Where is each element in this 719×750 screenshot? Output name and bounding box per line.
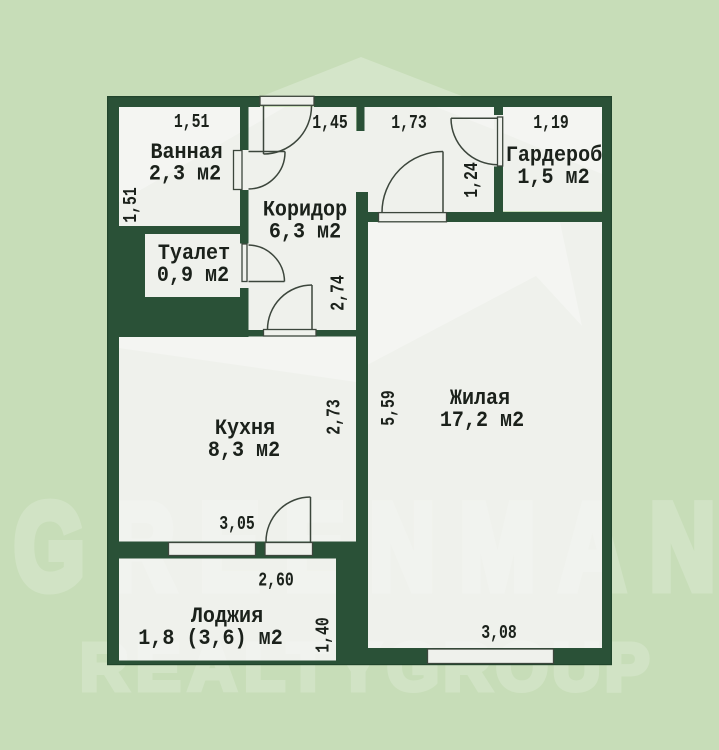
svg-text:1,24: 1,24 <box>463 162 484 198</box>
svg-text:GROUP: GROUP <box>387 630 654 705</box>
svg-text:2,3 м2: 2,3 м2 <box>149 162 221 187</box>
svg-text:1,45: 1,45 <box>312 113 348 134</box>
svg-text:5,59: 5,59 <box>379 390 400 426</box>
svg-text:8,3 м2: 8,3 м2 <box>208 438 280 463</box>
svg-text:1,73: 1,73 <box>391 113 427 134</box>
svg-text:1,51: 1,51 <box>121 187 142 223</box>
svg-text:3,08: 3,08 <box>481 623 517 644</box>
svg-text:2,60: 2,60 <box>258 571 294 592</box>
svg-text:1,40: 1,40 <box>314 617 335 653</box>
svg-text:1,51: 1,51 <box>174 112 210 133</box>
svg-text:2,74: 2,74 <box>329 275 350 311</box>
svg-text:1,5 м2: 1,5 м2 <box>517 165 589 190</box>
svg-text:1,19: 1,19 <box>533 113 569 134</box>
svg-text:1,8 (3,6) м2: 1,8 (3,6) м2 <box>138 626 282 651</box>
svg-text:2,73: 2,73 <box>325 399 346 435</box>
svg-text:0,9 м2: 0,9 м2 <box>157 263 229 288</box>
svg-text:17,2 м2: 17,2 м2 <box>440 408 524 433</box>
svg-text:3,05: 3,05 <box>219 514 255 535</box>
svg-text:6,3 м2: 6,3 м2 <box>269 219 341 244</box>
